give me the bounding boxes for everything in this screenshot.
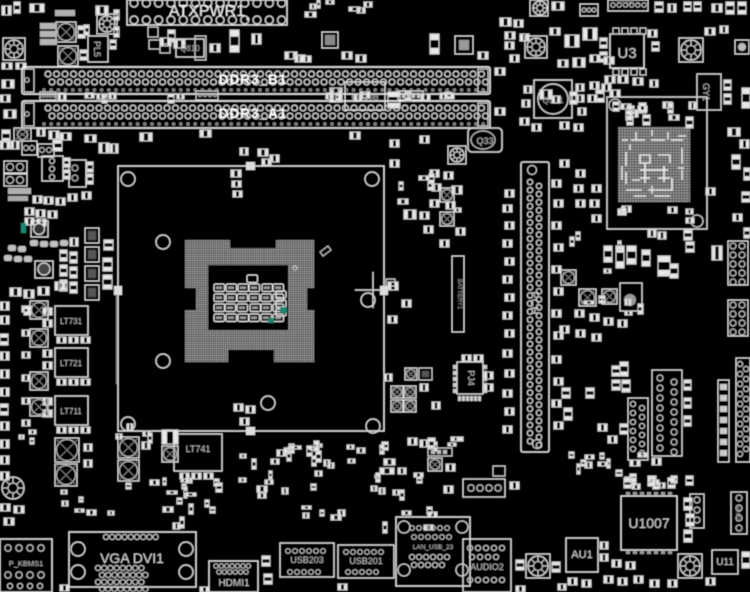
svg-text:BATTERY1: BATTERY1	[456, 279, 462, 310]
svg-text:HN03: HN03	[734, 506, 740, 522]
svg-text:U11: U11	[716, 557, 734, 568]
svg-text:ATXPWR1: ATXPWR1	[169, 3, 245, 20]
svg-text:PANEL1: PANEL1	[617, 0, 640, 6]
svg-text:PCH: PCH	[528, 291, 540, 314]
svg-text:HDMI1: HDMI1	[218, 578, 250, 589]
svg-text:U1007: U1007	[628, 515, 669, 531]
svg-text:PL5: PL5	[92, 41, 102, 57]
svg-text:LT731: LT731	[60, 317, 83, 326]
svg-text:DDR3_A1: DDR3_A1	[219, 106, 288, 121]
svg-text:Q33: Q33	[476, 136, 493, 146]
svg-text:U3: U3	[617, 45, 636, 62]
svg-text:AUDIO2: AUDIO2	[470, 562, 504, 572]
svg-text:PJ4: PJ4	[466, 370, 476, 386]
svg-text:GY1: GY1	[701, 83, 711, 101]
svg-text:USB203: USB203	[290, 555, 324, 565]
svg-text:LT721: LT721	[60, 359, 83, 368]
svg-text:LT741: LT741	[186, 444, 211, 454]
svg-text:VGA DVI1: VGA DVI1	[100, 550, 164, 566]
svg-text:USB201: USB201	[349, 556, 383, 566]
svg-text:DDR3_B1: DDR3_B1	[219, 72, 288, 87]
svg-text:AU1: AU1	[571, 549, 592, 561]
svg-text:Q810: Q810	[180, 44, 200, 53]
svg-text:LAN_USB_23: LAN_USB_23	[413, 544, 454, 551]
svg-text:P_KBMS1: P_KBMS1	[9, 559, 44, 568]
svg-text:LT711: LT711	[60, 407, 82, 416]
